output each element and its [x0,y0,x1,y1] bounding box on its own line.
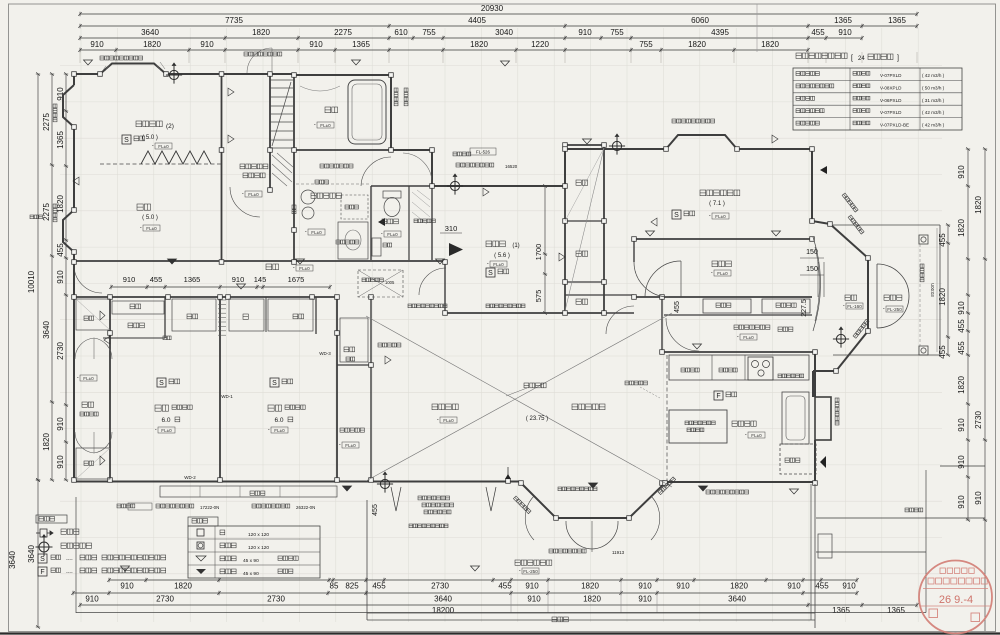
svg-text:755: 755 [422,28,436,37]
svg-text:( 42 m3/h ): ( 42 m3/h ) [922,110,945,115]
svg-text:3640: 3640 [27,545,36,563]
svg-text:S: S [40,556,45,563]
svg-text:227.5: 227.5 [801,299,808,317]
svg-text:6060: 6060 [691,16,709,25]
svg-text:2730: 2730 [267,595,285,604]
svg-text:FL±0: FL±0 [320,123,331,128]
svg-text:910: 910 [957,301,966,315]
svg-text:755: 755 [610,28,624,37]
svg-text:455: 455 [150,275,163,284]
svg-text:910: 910 [676,582,690,591]
svg-text:]: ] [897,55,899,62]
svg-text:910: 910 [638,582,652,591]
svg-text:FL±0: FL±0 [299,266,310,271]
svg-text:FL-160: FL-160 [847,304,862,309]
svg-text:310: 310 [445,224,458,233]
svg-text:45 x 90: 45 x 90 [243,558,259,564]
svg-text:455: 455 [957,341,966,355]
svg-text:(2): (2) [166,123,174,130]
svg-text:755: 755 [639,40,653,49]
svg-text:FL±0: FL±0 [751,433,762,438]
svg-text:----: ---- [66,570,73,576]
svg-text:455: 455 [674,301,681,313]
svg-text:910: 910 [787,582,801,591]
svg-text:1365: 1365 [184,275,201,284]
svg-text:WD-1: WD-1 [221,394,233,399]
svg-text:FL-250: FL-250 [887,307,902,312]
svg-text:2275: 2275 [42,203,51,221]
svg-text:3640: 3640 [42,321,51,339]
svg-text:2730: 2730 [156,595,174,604]
svg-text:( 23.75 ): ( 23.75 ) [526,416,548,422]
svg-text:FL±0: FL±0 [743,335,754,340]
svg-text:455: 455 [938,233,947,247]
svg-text:10010: 10010 [27,270,36,293]
svg-text:3640: 3640 [434,595,452,604]
svg-text:85: 85 [330,582,339,591]
svg-text:FL±0: FL±0 [493,262,504,267]
svg-text:1820: 1820 [957,376,966,394]
svg-text:3640: 3640 [141,28,159,37]
svg-text:1820: 1820 [143,40,161,49]
svg-text:2275: 2275 [42,113,51,131]
svg-text:910: 910 [638,595,652,604]
svg-text:1820: 1820 [252,28,270,37]
svg-text:1220: 1220 [531,40,549,49]
svg-text:1820: 1820 [730,582,748,591]
svg-text:4405: 4405 [468,16,486,25]
svg-text:910: 910 [309,40,323,49]
svg-text:910: 910 [56,417,65,431]
svg-text:1820: 1820 [583,595,601,604]
svg-text:24: 24 [858,56,865,62]
svg-text:910: 910 [838,28,852,37]
svg-text:455: 455 [56,243,65,257]
svg-text:455: 455 [957,319,966,333]
svg-text:FL±0: FL±0 [715,214,726,219]
svg-text:20930: 20930 [481,4,504,13]
svg-text:145: 145 [254,275,267,284]
svg-text:V-07PXLD-BE: V-07PXLD-BE [880,123,909,128]
svg-text:910: 910 [974,491,983,505]
svg-text:910: 910 [527,595,541,604]
svg-text:FL±0: FL±0 [161,428,172,433]
svg-text:1005: 1005 [385,280,395,285]
svg-text:FL±0: FL±0 [345,443,356,448]
svg-text:910: 910 [56,455,65,469]
svg-text:6.0: 6.0 [161,417,170,424]
svg-text:910: 910 [525,582,539,591]
svg-text:(1): (1) [512,243,519,249]
svg-text:FL±0: FL±0 [387,232,398,237]
svg-text:3040: 3040 [495,28,513,37]
svg-text:455: 455 [811,28,825,37]
svg-text:FL±0: FL±0 [717,271,728,276]
svg-text:3640: 3640 [8,551,17,569]
svg-text:120 x 120: 120 x 120 [248,532,269,538]
svg-text:S: S [272,380,277,387]
svg-text:1820: 1820 [56,195,65,213]
svg-text:26322-0N: 26322-0N [296,505,315,510]
svg-text:1365: 1365 [352,40,370,49]
svg-text:910: 910 [85,595,99,604]
svg-text:1675: 1675 [288,275,305,284]
svg-text:7735: 7735 [225,16,243,25]
svg-text:1820: 1820 [974,196,983,214]
svg-text:17222-0N: 17222-0N [200,505,219,510]
svg-text:2730: 2730 [974,411,983,429]
svg-text:910: 910 [578,28,592,37]
svg-text:1365: 1365 [834,16,852,25]
svg-text:V-06PXLD: V-06PXLD [880,98,902,103]
svg-text:( 5.6 ): ( 5.6 ) [494,253,510,259]
svg-text:FL-526: FL-526 [476,150,490,155]
svg-text:1365: 1365 [887,606,905,615]
svg-text:1820: 1820 [761,40,779,49]
svg-text:6.0: 6.0 [274,417,283,424]
svg-text:( 42 m3/h ): ( 42 m3/h ) [922,73,945,78]
svg-text:910: 910 [842,582,856,591]
svg-text:910: 910 [123,275,136,284]
svg-text:( 50 m3/h ): ( 50 m3/h ) [922,85,945,90]
svg-text:910: 910 [200,40,214,49]
svg-text:1820: 1820 [688,40,706,49]
svg-text:1820: 1820 [957,219,966,237]
svg-text:FL-250: FL-250 [523,569,538,574]
svg-text:( 5.0 ): ( 5.0 ) [142,215,158,221]
svg-text:FL±0: FL±0 [274,428,285,433]
svg-text:18200: 18200 [432,606,455,615]
svg-text:910: 910 [957,455,966,469]
svg-text:1700: 1700 [534,244,543,261]
svg-text:FL±0: FL±0 [311,230,322,235]
svg-text:V-07PXLD: V-07PXLD [880,73,902,78]
svg-text:FL±0: FL±0 [443,418,454,423]
svg-text:910: 910 [957,495,966,509]
svg-text:1820: 1820 [470,40,488,49]
svg-text:F: F [40,569,44,576]
svg-text:910: 910 [232,275,245,284]
svg-text:V-07PXLD: V-07PXLD [880,110,902,115]
svg-text:WD-3: WD-3 [319,351,331,356]
svg-text:S: S [124,137,129,144]
svg-text:FL±0: FL±0 [146,226,157,231]
svg-text:( 42 m3/h ): ( 42 m3/h ) [922,123,945,128]
svg-text:S: S [159,380,164,387]
svg-text:910: 910 [957,165,966,179]
svg-text:455: 455 [815,582,829,591]
svg-text:S: S [674,212,679,219]
svg-text:1820: 1820 [581,582,599,591]
svg-text:S: S [488,270,493,277]
svg-text:1365: 1365 [888,16,906,25]
svg-text:U00:03: U00:03 [930,283,935,297]
svg-text:----: ---- [66,557,73,563]
svg-text:455: 455 [372,504,379,516]
svg-text:WD-2: WD-2 [184,475,196,480]
svg-text:4395: 4395 [711,28,729,37]
svg-text:26 9.-4: 26 9.-4 [939,594,973,606]
svg-text:455: 455 [372,582,386,591]
svg-text:120 x 120: 120 x 120 [248,545,269,551]
svg-text:1820: 1820 [174,582,192,591]
svg-text:455: 455 [498,582,512,591]
svg-text:1820: 1820 [42,433,51,451]
svg-text:2730: 2730 [431,582,449,591]
svg-text:F: F [716,393,720,400]
svg-text:FL±0: FL±0 [83,376,94,381]
svg-text:2730: 2730 [56,342,65,360]
svg-text:910: 910 [120,582,134,591]
svg-text:( 31 m3/h ): ( 31 m3/h ) [922,98,945,103]
svg-text:45 x 90: 45 x 90 [243,571,259,577]
svg-text:910: 910 [90,40,104,49]
svg-text:2275: 2275 [334,28,352,37]
svg-text:V-08XPLD: V-08XPLD [880,85,902,90]
svg-text:[: [ [851,55,853,62]
svg-text:16520: 16520 [505,164,518,169]
svg-text:150: 150 [806,266,818,273]
svg-text:( 7.1 ): ( 7.1 ) [709,201,725,207]
svg-text:3640: 3640 [728,595,746,604]
svg-text:910: 910 [56,270,65,284]
svg-text:575: 575 [534,290,543,303]
svg-text:455: 455 [938,345,947,359]
svg-text:FL±0: FL±0 [248,192,259,197]
svg-text:1365: 1365 [56,131,65,149]
svg-text:825: 825 [345,582,359,591]
svg-text:1820: 1820 [938,288,947,306]
svg-text:11913: 11913 [612,550,625,555]
svg-text:610: 610 [394,28,408,37]
svg-text:1365: 1365 [832,606,850,615]
svg-text:910: 910 [957,418,966,432]
svg-text:FL±0: FL±0 [158,144,169,149]
